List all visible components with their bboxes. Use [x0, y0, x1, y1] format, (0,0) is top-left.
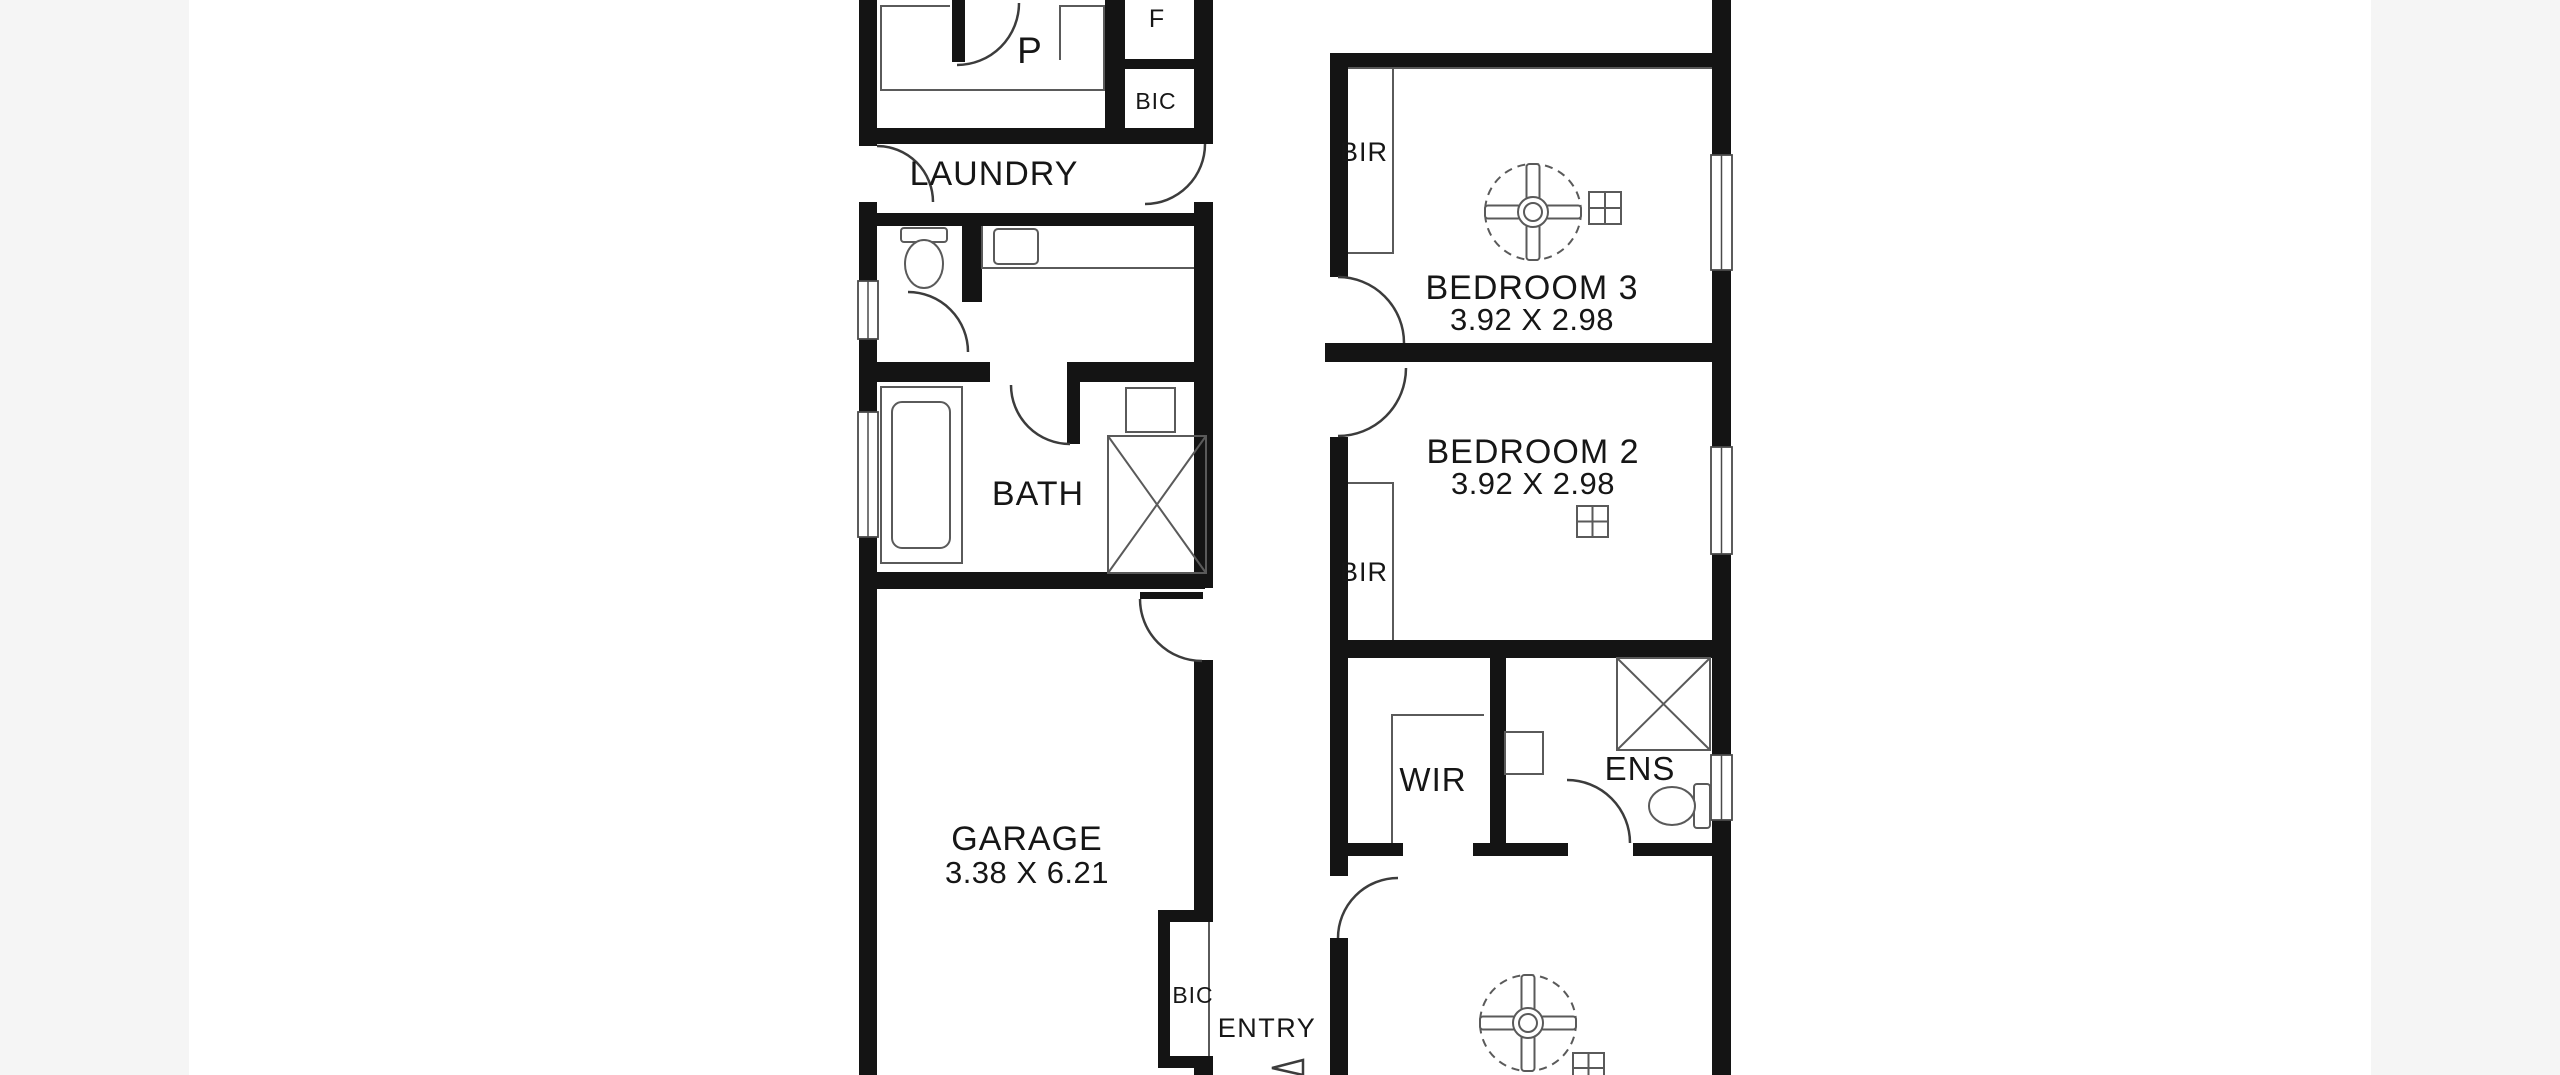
window-icon — [858, 281, 878, 339]
wall-segment — [1712, 820, 1731, 1075]
wall-segment — [1330, 53, 1712, 67]
window-icon — [1711, 155, 1732, 270]
wall-segment — [1080, 362, 1213, 382]
toilet-icon — [1649, 784, 1710, 828]
plan-canvas — [189, 0, 2371, 1075]
bedroom3-robe-label: BIR — [1340, 137, 1388, 167]
bath-label: BATH — [992, 475, 1084, 513]
wall-segment — [1105, 0, 1125, 128]
entry-cupboard-label: BIC — [1172, 982, 1213, 1008]
wall-segment — [876, 572, 1205, 589]
wall-segment — [1067, 362, 1080, 444]
wall-segment — [1158, 1056, 1213, 1068]
wall-segment — [1158, 922, 1170, 1056]
wall-segment — [876, 128, 1194, 144]
wall-segment — [859, 339, 877, 412]
floorplan-drawing: P F BIC LAUNDRY BATH GARAGE 3.38 X 6.21 … — [0, 0, 2560, 1075]
wall-segment — [1125, 59, 1194, 69]
wall-segment — [1325, 343, 1712, 362]
wir-label: WIR — [1399, 761, 1466, 798]
wall-segment — [962, 226, 982, 302]
fridge-label: F — [1149, 5, 1165, 33]
wall-segment — [1330, 437, 1348, 640]
wall-segment — [1330, 658, 1348, 843]
wall-segment — [1194, 202, 1213, 588]
laundry-label: LAUNDRY — [910, 155, 1079, 193]
wall-segment — [859, 537, 877, 1075]
window-icon — [1711, 447, 1732, 554]
ens-label: ENS — [1605, 750, 1676, 787]
vent-square-icon — [1573, 1053, 1604, 1075]
wall-segment — [1194, 0, 1213, 144]
bedroom2-robe-label: BIR — [1340, 557, 1388, 587]
bedroom3-dimensions: 3.92 X 2.98 — [1450, 302, 1614, 337]
wall-segment — [1473, 843, 1568, 856]
wall-segment — [876, 362, 990, 382]
entry-label: ENTRY — [1218, 1013, 1317, 1043]
laundry-cupboard-label: BIC — [1135, 88, 1176, 114]
wall-segment — [1194, 660, 1213, 910]
garage-label: GARAGE — [951, 820, 1102, 858]
bedroom2-dimensions: 3.92 X 2.98 — [1451, 466, 1615, 501]
wall-segment — [1330, 640, 1712, 658]
wall-segment — [1330, 843, 1348, 876]
wall-segment — [1712, 270, 1731, 447]
vent-square-icon — [1577, 506, 1608, 537]
garage-dimensions: 3.38 X 6.21 — [945, 855, 1109, 890]
wall-segment — [859, 202, 877, 281]
garage-door-leaf — [1140, 592, 1203, 599]
wall-segment — [1712, 0, 1731, 155]
ens-vanity-icon — [1505, 732, 1543, 774]
wall-segment — [1330, 938, 1348, 1075]
pantry-label: P — [1017, 30, 1043, 71]
wall-segment — [1712, 554, 1731, 755]
floorplan-page: P F BIC LAUNDRY BATH GARAGE 3.38 X 6.21 … — [0, 0, 2560, 1075]
wall-segment — [1490, 658, 1506, 843]
wall-segment — [859, 0, 877, 146]
wall-segment — [1194, 1068, 1213, 1075]
wall-segment — [952, 0, 965, 62]
window-icon — [1711, 755, 1732, 820]
wall-segment — [1158, 910, 1213, 922]
window-icon — [858, 412, 878, 537]
vent-square-icon — [1589, 192, 1621, 224]
bath-vanity-icon — [1126, 388, 1175, 432]
wall-segment — [876, 213, 1213, 226]
laundry-trough-icon — [994, 229, 1038, 264]
wall-segment — [1633, 843, 1712, 856]
